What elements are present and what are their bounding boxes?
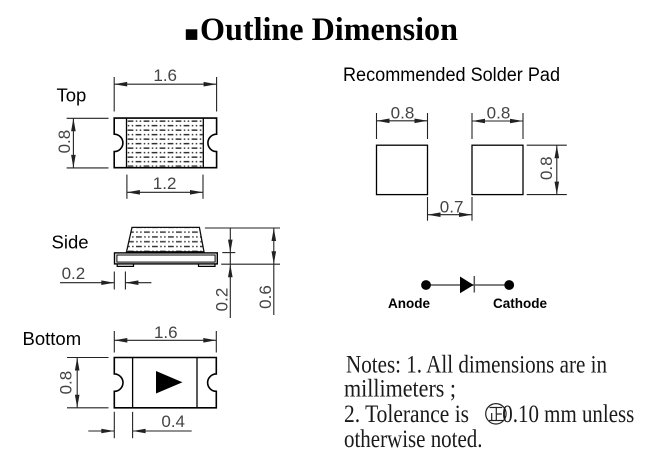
svg-text:millimeters ;: millimeters ; xyxy=(344,376,456,403)
svg-text:Side: Side xyxy=(52,232,89,253)
svg-text:0.4: 0.4 xyxy=(161,412,185,431)
svg-text:Bottom: Bottom xyxy=(23,328,82,349)
svg-text:0.2: 0.2 xyxy=(213,288,232,312)
svg-text:1.6: 1.6 xyxy=(154,323,178,342)
svg-text:0.2: 0.2 xyxy=(62,264,86,283)
svg-text:Anode: Anode xyxy=(388,296,430,311)
svg-text:1.2: 1.2 xyxy=(153,174,177,193)
svg-text:Top: Top xyxy=(57,85,87,106)
svg-text:2. Tolerance is: 2. Tolerance is xyxy=(344,401,469,428)
svg-text:Cathode: Cathode xyxy=(493,296,547,311)
svg-text:0.8: 0.8 xyxy=(537,156,556,180)
svg-text:0.7: 0.7 xyxy=(440,198,464,217)
svg-text:1.6: 1.6 xyxy=(153,66,177,85)
svg-text:0.8: 0.8 xyxy=(391,104,415,123)
svg-text:0.8: 0.8 xyxy=(57,371,76,395)
svg-text:0.8: 0.8 xyxy=(487,104,511,123)
svg-text:Recommended Solder Pad: Recommended Solder Pad xyxy=(343,65,560,86)
svg-text:Notes: 1. All dimensions are i: Notes: 1. All dimensions are in xyxy=(346,352,607,379)
svg-text:Outline Dimension: Outline Dimension xyxy=(200,12,458,48)
svg-text:0.8: 0.8 xyxy=(55,130,74,154)
svg-text:0.6: 0.6 xyxy=(256,285,275,309)
svg-text:otherwise noted.: otherwise noted. xyxy=(344,426,483,453)
svg-text:0.10 mm unless: 0.10 mm unless xyxy=(502,401,634,428)
